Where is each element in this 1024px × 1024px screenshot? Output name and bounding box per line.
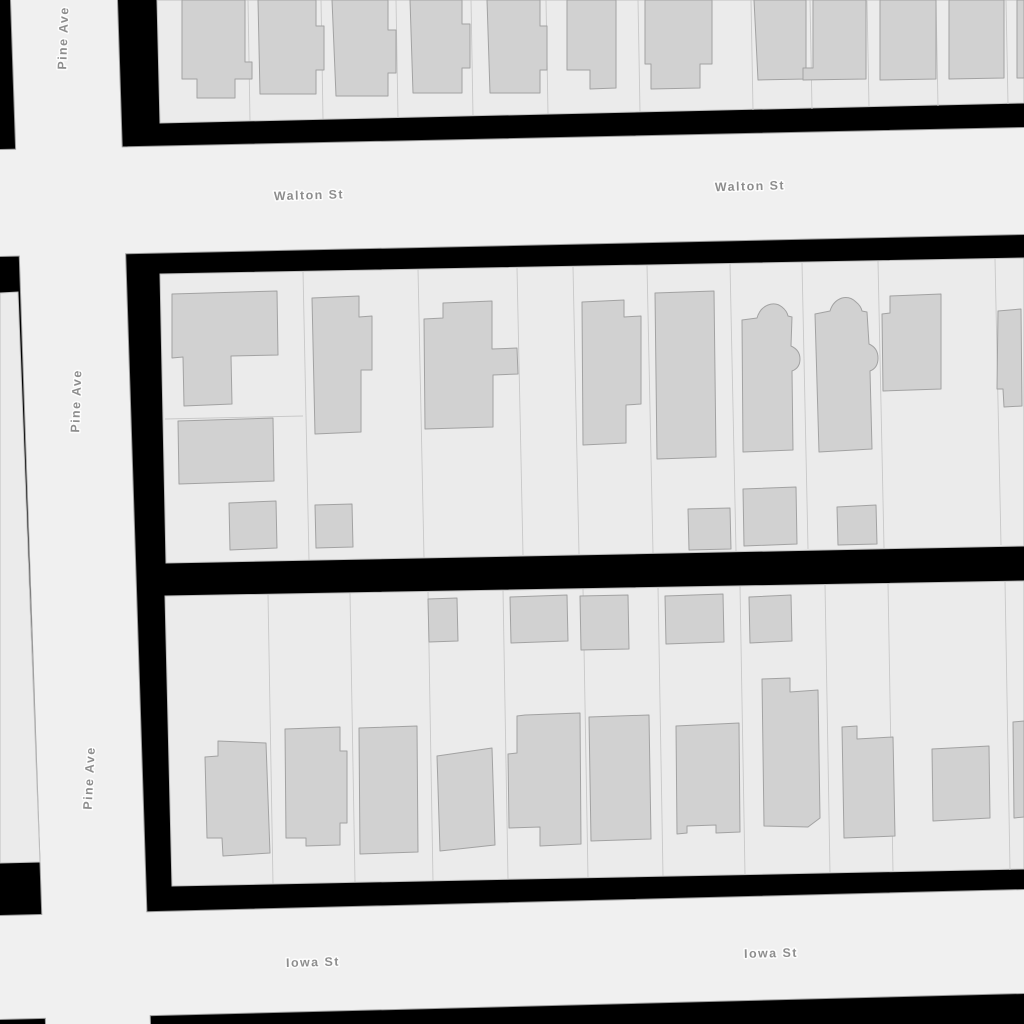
building-footprint bbox=[742, 304, 800, 452]
street-name-label: Pine Ave bbox=[55, 6, 71, 70]
building-footprint bbox=[882, 294, 941, 391]
street-name-label: Iowa St bbox=[286, 955, 340, 970]
building-footprint bbox=[688, 508, 731, 550]
building-footprint bbox=[410, 0, 470, 93]
building-footprint bbox=[837, 505, 877, 545]
building-footprint bbox=[315, 504, 353, 548]
building-footprint bbox=[842, 726, 895, 838]
building-footprint bbox=[285, 727, 347, 846]
building-footprint bbox=[754, 0, 806, 80]
building-footprint bbox=[178, 418, 274, 484]
building-footprint bbox=[229, 501, 277, 550]
building-footprint bbox=[655, 291, 716, 459]
building-footprint bbox=[880, 0, 936, 80]
building-footprint bbox=[1017, 0, 1024, 78]
building-footprint bbox=[676, 723, 740, 834]
building-footprint bbox=[1013, 721, 1024, 818]
building-footprint bbox=[437, 748, 495, 851]
street-name-label: Walton St bbox=[274, 187, 345, 203]
building-footprint bbox=[258, 0, 324, 94]
building-footprint bbox=[932, 746, 990, 821]
building-footprint bbox=[487, 0, 547, 93]
building-footprint bbox=[589, 715, 651, 841]
building-footprint bbox=[510, 595, 568, 643]
map-svg: Walton StWalton StIowa StIowa StPine Ave… bbox=[0, 0, 1024, 1024]
building-footprint bbox=[428, 598, 458, 642]
building-footprint bbox=[508, 713, 581, 846]
building-footprint bbox=[359, 726, 418, 854]
street-name-label: Iowa St bbox=[744, 946, 798, 961]
building-footprint bbox=[665, 594, 724, 644]
building-footprint bbox=[743, 487, 797, 546]
map-canvas[interactable]: Walton StWalton StIowa StIowa StPine Ave… bbox=[0, 0, 1024, 1024]
building-footprint bbox=[332, 0, 396, 96]
street-name-label: Walton St bbox=[715, 178, 786, 194]
building-footprint bbox=[749, 595, 792, 643]
road-walton-st bbox=[0, 128, 1024, 256]
building-footprint bbox=[762, 678, 820, 827]
building-footprint bbox=[580, 595, 629, 650]
street-name-label: Pine Ave bbox=[68, 369, 84, 433]
building-footprint bbox=[949, 0, 1004, 79]
